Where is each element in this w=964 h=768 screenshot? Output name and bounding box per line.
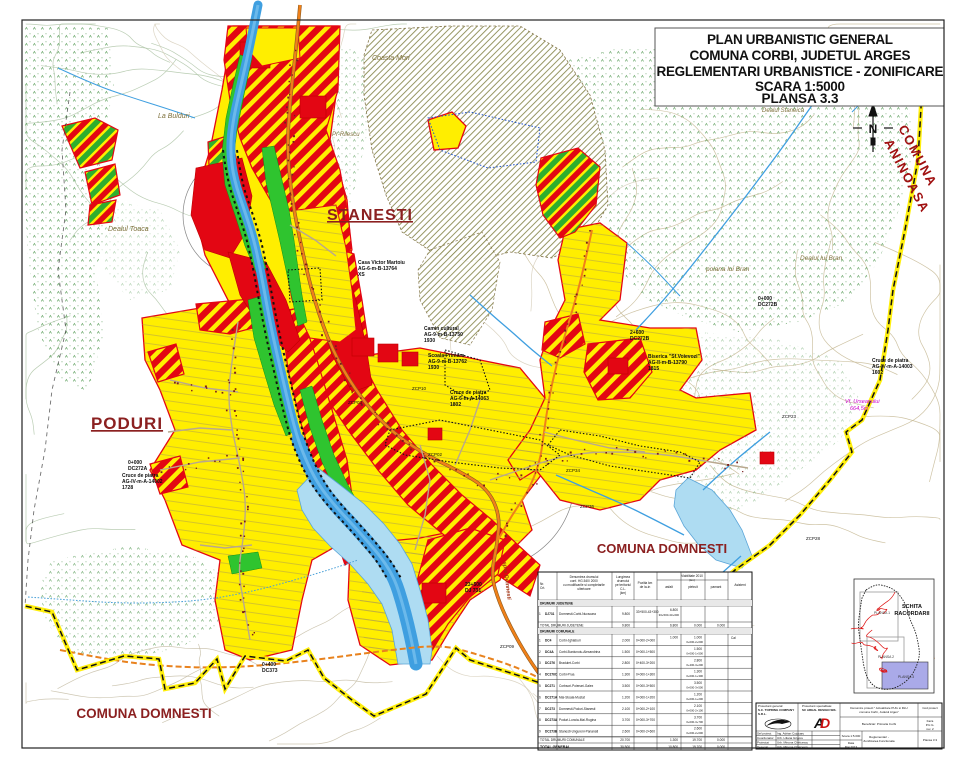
svg-text:Dealul Toaca: Dealul Toaca	[108, 226, 149, 233]
svg-text:0+000-3+700: 0+000-3+700	[686, 720, 703, 724]
svg-text:Beneficiar: Primaria Corbi: Beneficiar: Primaria Corbi	[862, 722, 897, 726]
svg-text:2: 2	[539, 650, 541, 654]
svg-text:XS: XS	[358, 272, 365, 278]
svg-text:6: 6	[539, 695, 541, 699]
svg-text:Proiectat: Proiectat	[757, 741, 769, 745]
svg-text:S.R.L.: S.R.L.	[758, 712, 767, 716]
svg-text:Corbi-Jghiaburi: Corbi-Jghiaburi	[559, 638, 581, 642]
svg-text:COMUNA CORBI, JUDETUL ARGES: COMUNA CORBI, JUDETUL ARGES	[690, 48, 911, 63]
svg-text:Sef proiect: Sef proiect	[757, 732, 772, 736]
svg-text:DC276: DC276	[545, 661, 555, 665]
svg-text:COMUNA DOMNESTI: COMUNA DOMNESTI	[76, 706, 211, 721]
svg-text:5: 5	[539, 684, 541, 688]
svg-text:DC271A: DC271A	[545, 695, 558, 699]
svg-text:ZCP02: ZCP02	[428, 452, 443, 457]
svg-text:Domnesti-Poduri-Stanesti: Domnesti-Poduri-Stanesti	[559, 707, 596, 711]
svg-text:DC271: DC271	[545, 684, 555, 688]
svg-text:DC273A: DC273A	[545, 718, 558, 722]
svg-text:3.500: 3.500	[622, 684, 630, 688]
svg-text:9.800: 9.800	[622, 612, 630, 616]
svg-text:1.300: 1.300	[670, 738, 678, 742]
svg-text:Corbsori-Poienari-Galex: Corbsori-Poienari-Galex	[559, 684, 594, 688]
svg-text:pamant: pamant	[711, 585, 722, 589]
svg-text:19.700: 19.700	[692, 738, 702, 742]
svg-text:Vf. Urseanului: Vf. Urseanului	[845, 399, 880, 405]
svg-text:ulterioare: ulterioare	[577, 587, 591, 591]
svg-text:DC272B: DC272B	[630, 336, 650, 342]
svg-text:de la-in: de la-in	[640, 585, 651, 589]
svg-text:2.600: 2.600	[694, 727, 702, 731]
svg-text:DRUMURI COMUNALE: DRUMURI COMUNALE	[540, 630, 574, 634]
svg-text:0+000-2+000: 0+000-2+000	[636, 638, 655, 642]
svg-text:comuna Corbi, Judetul Arges": comuna Corbi, Judetul Arges"	[859, 710, 899, 714]
svg-text:ZCP03: ZCP03	[348, 400, 363, 405]
svg-text:1: 1	[539, 638, 541, 642]
svg-text:0+000-1+200: 0+000-1+200	[686, 697, 703, 701]
svg-text:2.000: 2.000	[622, 638, 630, 642]
svg-text:2.100: 2.100	[694, 704, 702, 708]
svg-text:0+000-1+300: 0+000-1+300	[686, 674, 703, 678]
svg-text:1: 1	[539, 612, 541, 616]
svg-text:DC276C: DC276C	[545, 673, 558, 677]
svg-text:9: 9	[539, 730, 541, 734]
svg-text:1.300: 1.300	[694, 670, 702, 674]
svg-text:pietruit: pietruit	[688, 585, 698, 589]
svg-text:1802: 1802	[450, 402, 461, 408]
svg-text:0.000: 0.000	[717, 738, 725, 742]
svg-text:asfalt: asfalt	[665, 585, 673, 589]
svg-text:Corbi-Prua: Corbi-Prua	[559, 673, 575, 677]
svg-text:Mai-Stoala-Mustat: Mai-Stoala-Mustat	[559, 695, 585, 699]
svg-text:3.700: 3.700	[694, 715, 702, 719]
svg-text:Plansa 3.3: Plansa 3.3	[923, 738, 938, 742]
svg-text:DC4A: DC4A	[545, 650, 554, 654]
svg-text:DC273B: DC273B	[545, 730, 558, 734]
svg-text:33+500-43+300: 33+500-43+300	[636, 610, 659, 614]
svg-text:6.800: 6.800	[670, 624, 678, 628]
svg-text:1.500: 1.500	[622, 650, 630, 654]
svg-text:0+000-1+500: 0+000-1+500	[686, 651, 703, 655]
svg-text:0+000-1+300: 0+000-1+300	[636, 673, 655, 677]
svg-text:Urb. Liliana Grigore: Urb. Liliana Grigore	[777, 736, 803, 740]
svg-text:1.500: 1.500	[694, 647, 702, 651]
svg-text:PLANSA 3.3: PLANSA 3.3	[762, 91, 839, 106]
svg-text:2.800: 2.800	[694, 658, 702, 662]
svg-text:9.800: 9.800	[622, 624, 630, 628]
svg-text:3.700: 3.700	[622, 718, 630, 722]
svg-text:0+000-2+000: 0+000-2+000	[686, 640, 703, 644]
svg-text:COMUNA DOMNESTI: COMUNA DOMNESTI	[597, 541, 727, 556]
svg-text:1.000: 1.000	[670, 636, 678, 640]
svg-text:ZCP34: ZCP34	[566, 468, 581, 473]
svg-text:DC373: DC373	[262, 668, 278, 674]
svg-text:0+000-1+200: 0+000-1+200	[636, 695, 655, 699]
svg-text:2.800: 2.800	[622, 661, 630, 665]
svg-text:PLANSA 3: PLANSA 3	[898, 675, 914, 679]
svg-text:Cal: Cal	[731, 636, 736, 640]
svg-text:7: 7	[539, 707, 541, 711]
svg-text:Bradulet-Corbi: Bradulet-Corbi	[559, 661, 580, 665]
svg-text:Domnesti-Corbi-Nucsoara: Domnesti-Corbi-Nucsoara	[559, 612, 596, 616]
svg-text:0+400-3+200: 0+400-3+200	[636, 661, 655, 665]
svg-text:0+000-2+600: 0+000-2+600	[686, 731, 703, 735]
svg-text:1602: 1602	[872, 370, 883, 376]
svg-text:1815: 1815	[648, 366, 659, 372]
svg-text:1728: 1728	[122, 485, 133, 491]
svg-text:8: 8	[539, 718, 541, 722]
svg-text:PLANSA 2: PLANSA 2	[878, 655, 894, 659]
svg-text:0+000-2+100: 0+000-2+100	[686, 708, 703, 712]
svg-text:0+000-3+500: 0+000-3+500	[636, 684, 655, 688]
svg-text:SCHITA: SCHITA	[902, 604, 922, 610]
svg-text:2.600: 2.600	[622, 730, 630, 734]
svg-text:poiana lui Bran: poiana lui Bran	[705, 266, 750, 273]
svg-text:DC4: DC4	[545, 638, 552, 642]
svg-text:0+000-3+700: 0+000-3+700	[636, 718, 655, 722]
svg-text:1.300: 1.300	[622, 673, 630, 677]
svg-text:0.000: 0.000	[717, 624, 725, 628]
svg-text:Cod proiect: Cod proiect	[922, 706, 938, 710]
svg-text:STANESTI: STANESTI	[327, 207, 413, 224]
svg-text:6.800: 6.800	[670, 608, 678, 612]
svg-text:ZCP36: ZCP36	[580, 504, 595, 509]
svg-text:664,5m: 664,5m	[850, 406, 869, 412]
svg-text:Urb. Minona Chelcescu: Urb. Minona Chelcescu	[777, 741, 809, 745]
svg-text:3.500: 3.500	[694, 681, 702, 685]
svg-text:20.700: 20.700	[620, 738, 630, 742]
svg-text:PLAN URBANISTIC GENERAL: PLAN URBANISTIC GENERAL	[707, 32, 893, 47]
svg-text:0+400-3+200: 0+400-3+200	[686, 663, 703, 667]
svg-text:ZCP23: ZCP23	[782, 414, 797, 419]
svg-text:1930: 1930	[424, 338, 435, 344]
svg-text:DC273: DC273	[545, 707, 555, 711]
svg-text:ZCP09: ZCP09	[500, 644, 515, 649]
svg-text:0+000-3+500: 0+000-3+500	[686, 686, 703, 690]
svg-text:TOTAL DRUMURI JUDETENE: TOTAL DRUMURI JUDETENE	[540, 624, 584, 628]
svg-text:1930: 1930	[428, 365, 439, 371]
svg-text:0+000-2+100: 0+000-2+100	[636, 707, 655, 711]
svg-text:Crt.: Crt.	[540, 586, 545, 590]
svg-text:DC272B: DC272B	[758, 302, 778, 308]
svg-text:Dealul Staneica: Dealul Staneica	[762, 108, 805, 114]
svg-text:SC AREAL DESIGN SRL: SC AREAL DESIGN SRL	[802, 708, 837, 712]
svg-text:RACORDARII: RACORDARII	[894, 611, 930, 617]
svg-text:33+500-43+300: 33+500-43+300	[659, 613, 680, 617]
svg-text:ZCP10: ZCP10	[412, 386, 427, 391]
svg-text:TOTAL DRUMURI COMUNALE: TOTAL DRUMURI COMUNALE	[540, 738, 585, 742]
svg-text:(km): (km)	[689, 578, 695, 582]
svg-text:rev. 2: rev. 2	[926, 727, 934, 731]
svg-text:ZCP28: ZCP28	[806, 536, 821, 541]
svg-text:2.100: 2.100	[622, 707, 630, 711]
svg-text:1.000: 1.000	[694, 636, 702, 640]
svg-text:Corbi-Burdunoiu-Alexandrina: Corbi-Burdunoiu-Alexandrina	[559, 650, 600, 654]
svg-text:1.200: 1.200	[694, 693, 702, 697]
svg-text:(km): (km)	[620, 591, 626, 595]
svg-text:Ing. Adrian Cojocaru: Ing. Adrian Cojocaru	[777, 732, 805, 736]
svg-text:DRUMURI JUDETENE: DRUMURI JUDETENE	[540, 602, 573, 606]
svg-text:D: D	[820, 715, 830, 731]
svg-text:Stanesti-Ungureni-Pananati: Stanesti-Ungureni-Pananati	[559, 730, 598, 734]
svg-text:REGLEMENTARI URBANISTICE - ZON: REGLEMENTARI URBANISTICE - ZONIFICARE	[657, 64, 944, 79]
svg-text:Dealul lui Bran: Dealul lui Bran	[800, 255, 843, 262]
svg-text:DJ731: DJ731	[545, 612, 555, 616]
svg-text:Zonificarea Functionala: Zonificarea Functionala	[863, 739, 895, 743]
svg-text:N: N	[869, 122, 878, 136]
svg-text:DJ 731: DJ 731	[465, 588, 481, 594]
svg-text:0+000-1+500: 0+000-1+500	[636, 650, 655, 654]
svg-text:0+000-2+600: 0+000-2+600	[636, 730, 655, 734]
svg-text:Scara 1:5.000: Scara 1:5.000	[842, 734, 861, 738]
svg-text:Pr-Rilescu: Pr-Rilescu	[332, 132, 360, 138]
svg-text:4: 4	[539, 673, 541, 677]
svg-text:DC272A: DC272A	[128, 466, 148, 472]
svg-text:0.000: 0.000	[694, 624, 702, 628]
svg-text:Coordonator: Coordonator	[757, 736, 774, 740]
svg-text:1.200: 1.200	[622, 695, 630, 699]
svg-text:PLANSA 1: PLANSA 1	[874, 611, 890, 615]
svg-text:Coasta Mori: Coasta Mori	[372, 55, 410, 62]
svg-text:Poduri-Luncia-Mai-Rugina: Poduri-Luncia-Mai-Rugina	[559, 718, 596, 722]
svg-text:PODURI: PODURI	[91, 414, 163, 433]
svg-text:Asistent: Asistent	[734, 583, 745, 587]
svg-text:La Bulduri: La Bulduri	[158, 113, 190, 120]
svg-text:3: 3	[539, 661, 541, 665]
